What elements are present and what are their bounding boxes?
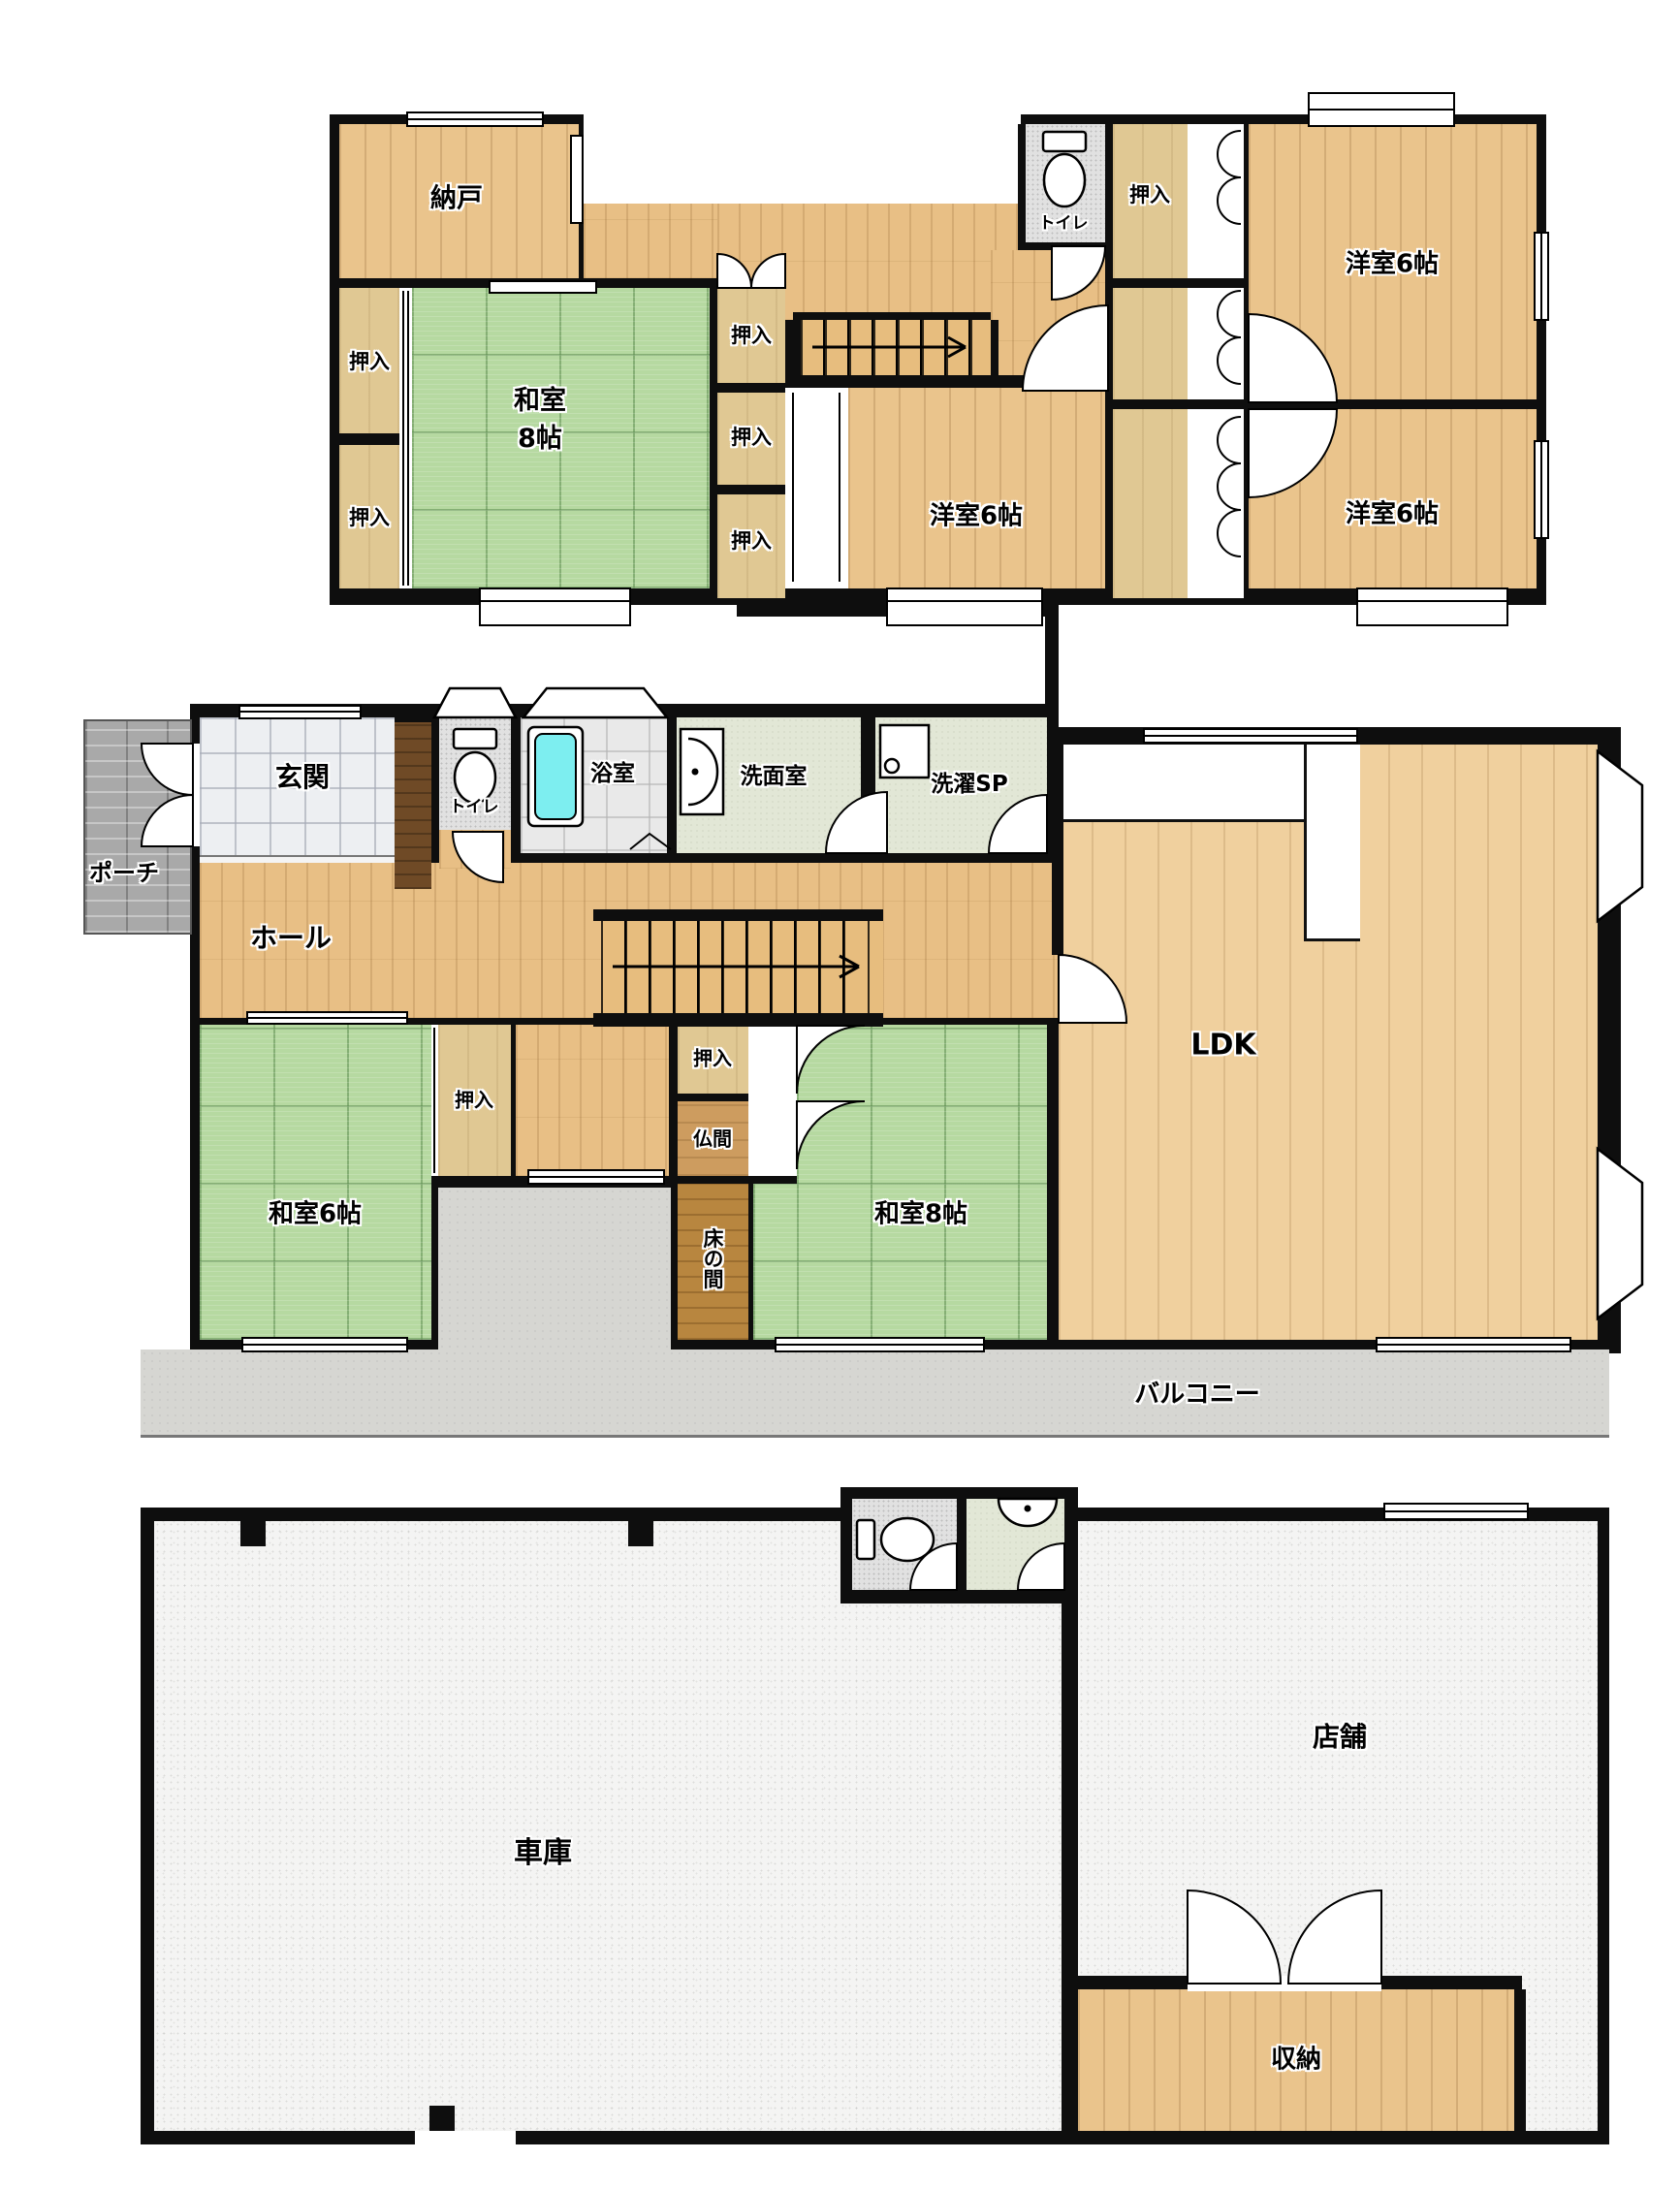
kitchen-counter-leg [1304,745,1360,941]
label-shop: 店舗 [1313,1716,1367,1755]
label-yoshitsu6-tr: 洋室6帖 [1346,244,1439,280]
corridor-mid-1f [516,1025,669,1176]
label-shuno: 収納 [1271,2040,1321,2076]
label-washitsu8-1f: 和室8帖 [874,1194,967,1230]
kitchen-counter-h [1059,745,1307,822]
label-oshiire-tr: 押入 [1129,179,1170,208]
label-oshiire-c3: 押入 [731,525,772,555]
label-balcony: バルコニー [1134,1375,1259,1411]
closet-column-right-2f [1113,288,1188,598]
shoe-cabinet-1f [395,722,431,889]
label-yoshitsu6-c: 洋室6帖 [930,496,1023,532]
room-washitsu8-1f [797,1025,1047,1340]
floor-plan-page: 納戸 押入 押入 和室 8帖 押入 押入 押入 トイレ 押入 洋室6帖 洋室6帖… [0,0,1680,2191]
label-tokonoma: 床の間 [698,1228,727,1289]
door-strip-c-2f [785,388,848,588]
label-oshiire-c1: 押入 [731,320,772,349]
pillar [628,1521,653,1546]
label-toilet-1f: トイレ [450,793,499,817]
room-garage [154,1521,1062,2131]
label-bath: 浴室 [590,754,635,787]
door-strip-washitsu8 [748,1025,797,1176]
sliding-door-washitsu6 [431,1025,438,1176]
label-yoshitsu6-br: 洋室6帖 [1346,494,1439,530]
label-washitsu6: 和室6帖 [269,1194,362,1230]
label-washitsu8-2f-line1: 和室 [514,386,566,416]
label-nando: 納戸 [430,177,483,215]
label-washitsu8-2f-line2: 8帖 [518,424,562,454]
label-senmen: 洗面室 [741,757,808,790]
label-genkan: 玄関 [275,756,330,795]
balcony-strip [141,1350,1609,1438]
stairs-1f [601,921,883,1013]
label-oshiire-w6: 押入 [455,1085,493,1113]
pillar [240,1521,266,1546]
label-hall: ホール [250,917,332,956]
2f-void-top [584,114,1021,204]
label-garage: 車庫 [514,1828,572,1871]
label-washitsu8-2f: 和室 8帖 [514,379,566,455]
room-washitsu6-1f [200,1025,431,1340]
porch-1f [83,719,192,935]
balcony-notch [438,1188,671,1350]
room-sink-ground [967,1499,1064,1590]
bifold-strip-2f [1188,124,1244,598]
label-toilet-2f: トイレ [1039,209,1089,234]
label-oshiire-l1: 押入 [349,346,390,375]
garage-door-gap [415,2131,516,2146]
sliding-door-washitsu8-2f [399,288,412,588]
label-oshiire-l2: 押入 [349,502,390,531]
label-sentaku: 洗濯SP [931,765,1007,798]
label-oshiire-c2: 押入 [731,422,772,451]
washitsu8-patch [753,1184,797,1340]
label-oshiire-col: 押入 [693,1043,732,1071]
label-butsuma: 仏間 [693,1124,732,1152]
room-yoshitsu6-c-2f [848,388,1105,588]
room-toilet-ground [852,1499,957,1590]
stairs-2f [801,320,991,375]
hall-patch-toilet-door [439,830,511,869]
pillar [429,2106,455,2131]
label-ldk: LDK [1190,1029,1255,1063]
label-porch: ポーチ [89,854,159,888]
